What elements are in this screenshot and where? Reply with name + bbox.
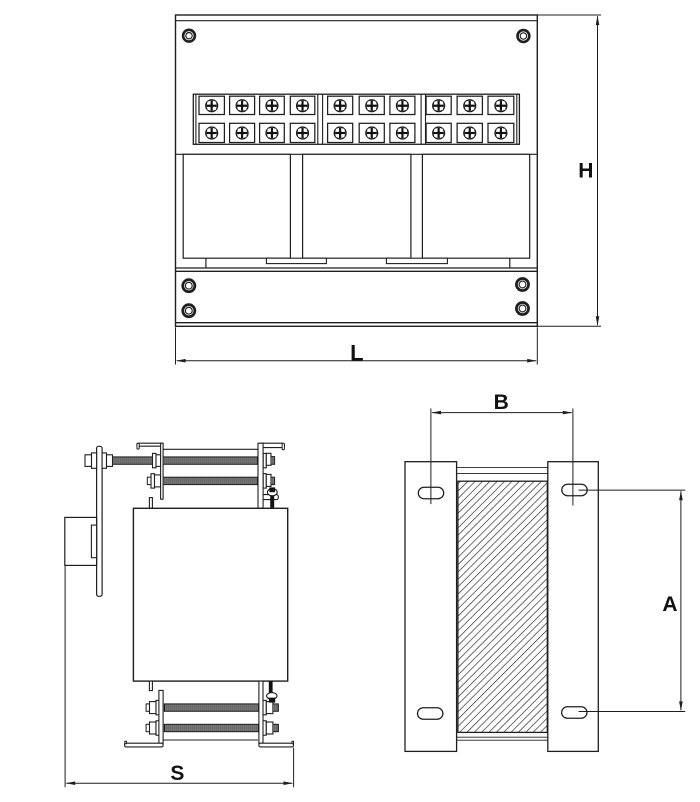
svg-text:S: S [170, 762, 184, 785]
svg-text:B: B [494, 391, 509, 414]
svg-text:A: A [662, 593, 677, 616]
svg-text:H: H [578, 160, 593, 183]
svg-text:L: L [350, 341, 363, 366]
